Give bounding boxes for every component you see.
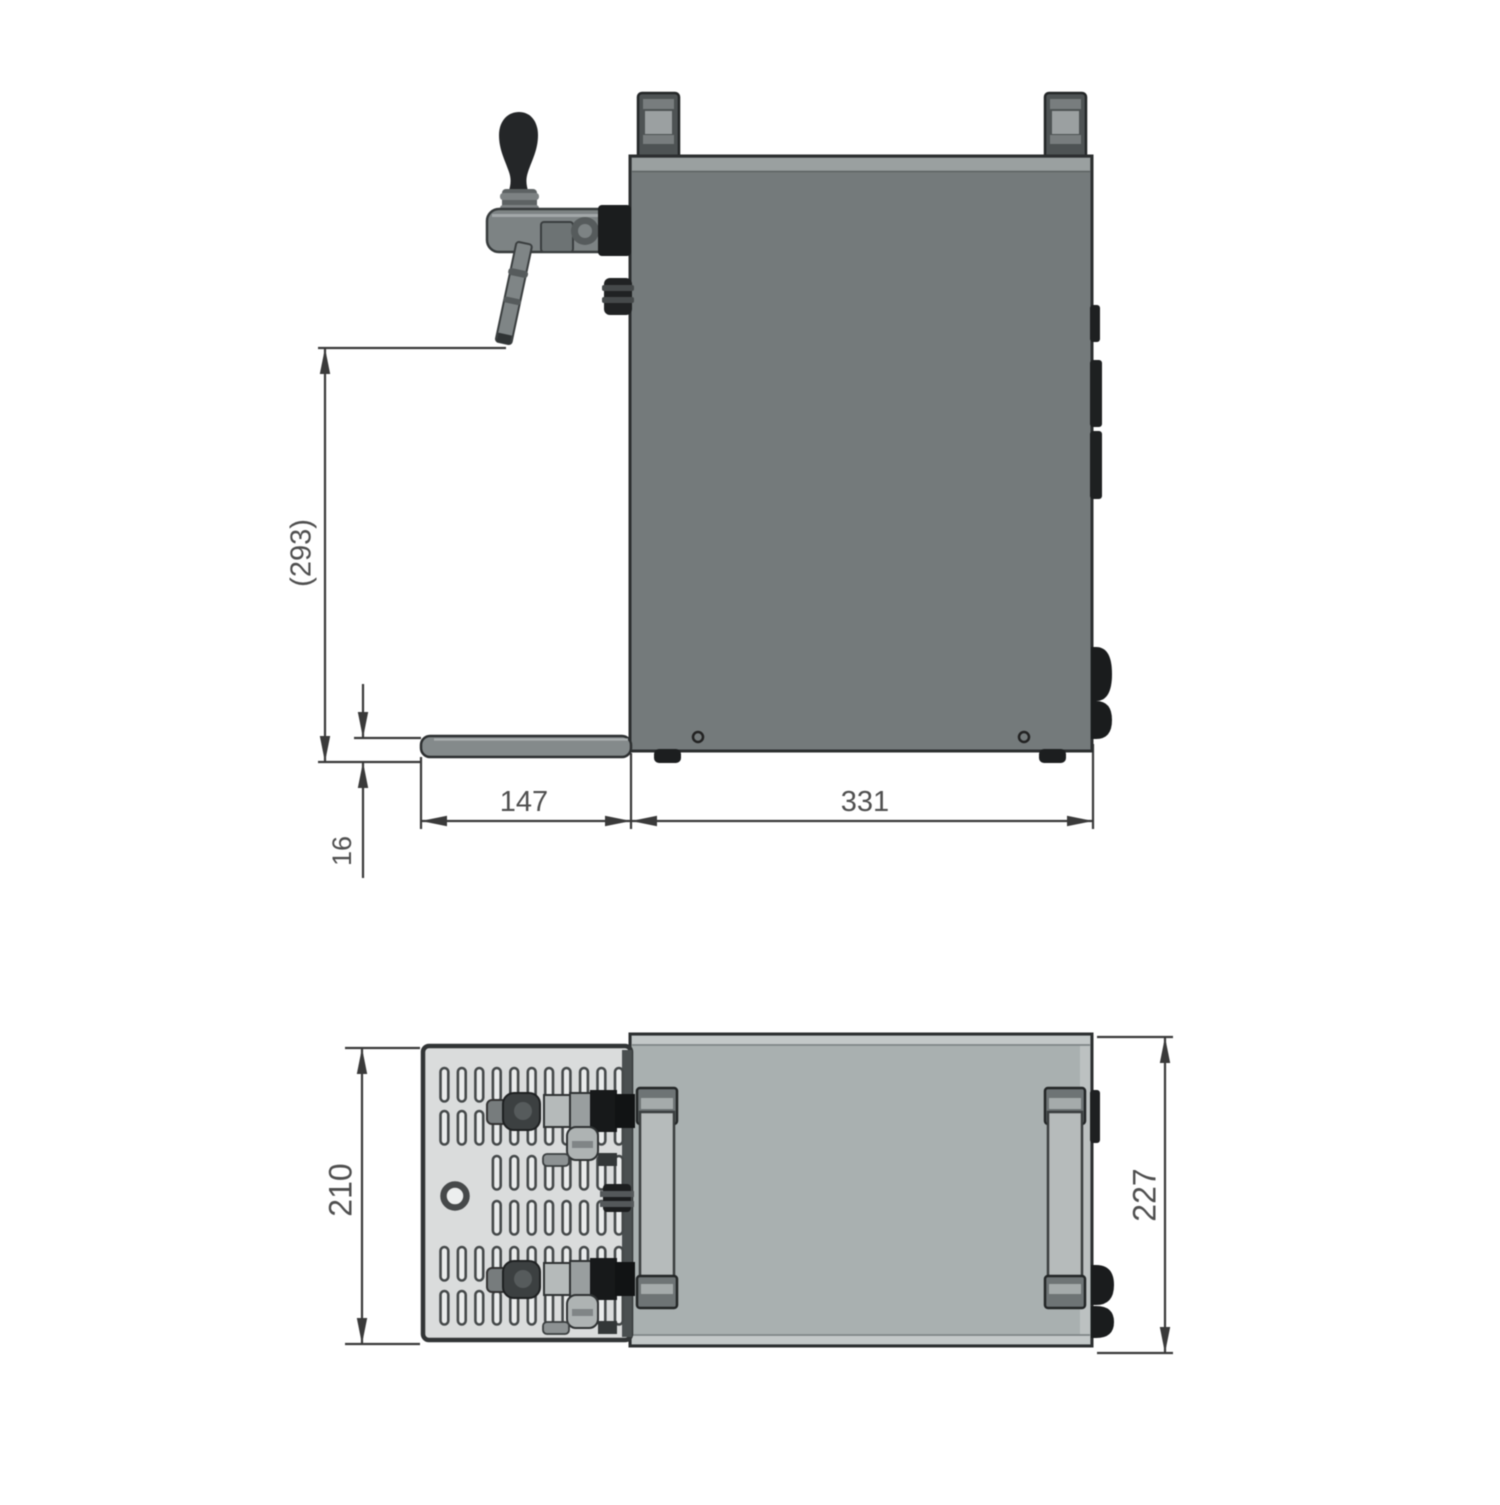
svg-text:(293): (293) bbox=[286, 519, 318, 587]
svg-text:147: 147 bbox=[500, 786, 548, 818]
svg-text:227: 227 bbox=[1126, 1168, 1162, 1221]
svg-text:16: 16 bbox=[327, 836, 357, 866]
svg-text:331: 331 bbox=[841, 786, 889, 818]
svg-text:210: 210 bbox=[322, 1163, 358, 1216]
